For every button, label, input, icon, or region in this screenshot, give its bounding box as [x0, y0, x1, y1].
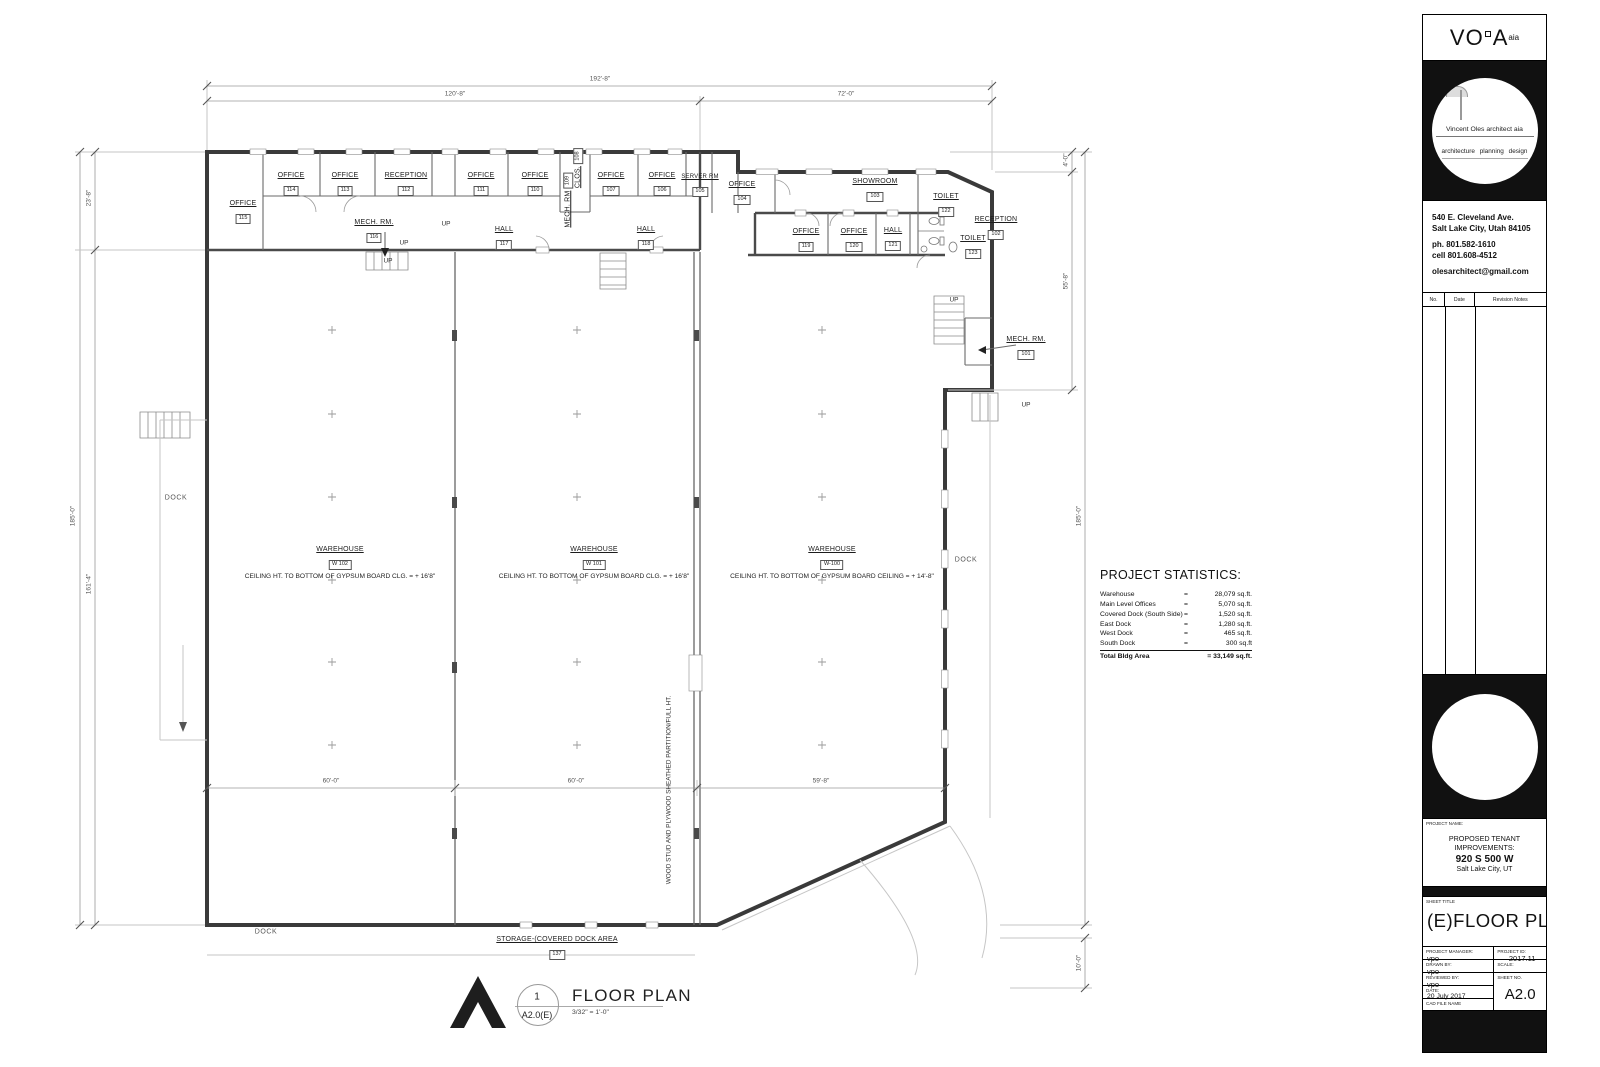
project-name-line2: 920 S 500 W — [1423, 854, 1546, 865]
project-name-line3: Salt Lake City, UT — [1423, 866, 1546, 873]
room-label-storage-137: STORAGE-(COVERED DOCK AREA 137 — [496, 936, 617, 960]
address-line-1: 540 E. Cleveland Ave. — [1432, 213, 1546, 224]
dock-label-west: DOCK — [165, 495, 188, 502]
firm-services: architecture planning design — [1432, 148, 1538, 155]
sheet-no-label: SHEET NO. — [1494, 973, 1546, 980]
title-block: VOAaia Vincent Oles architect aia archit… — [1422, 14, 1547, 1053]
room-label-office-104: OFFICE104 — [729, 181, 756, 205]
revision-table-header: No. Date Revision Notes — [1423, 293, 1546, 307]
room-label-office-115: OFFICE115 — [230, 200, 257, 224]
room-label-warehouse-w100: WAREHOUSE W-100 CEILING HT. TO BOTTOM OF… — [730, 546, 934, 580]
stamp-panel — [1423, 675, 1546, 819]
fields-left-column: PROJECT MANAGER:vpo DRAWN BY:vpo REVIEWE… — [1423, 947, 1494, 1010]
room-label-warehouse-w102: WAREHOUSE W 102 CEILING HT. TO BOTTOM OF… — [245, 546, 435, 580]
up-label: UP — [441, 221, 450, 228]
wall-openings — [250, 149, 948, 928]
drafting-lamp-sketch — [1460, 90, 1478, 120]
plan-sheet-ref: A2.0(E) — [522, 1010, 553, 1020]
title-block-footer — [1423, 1011, 1546, 1052]
firm-seal-disc: Vincent Oles architect aia architecture … — [1432, 78, 1538, 184]
logo-vo-text: VO — [1450, 25, 1484, 51]
fields-right-column: PROJECT ID:2017.11 SCALE: SHEET NO.A2.0 — [1494, 947, 1546, 1010]
plan-number: 1 — [534, 992, 540, 1003]
phone: ph. 801.582-1610 — [1432, 240, 1546, 251]
sheet-title-box: SHEET TITLE (E)FLOOR PLAN — [1423, 897, 1546, 947]
room-label-hall-117: HALL117 — [495, 226, 513, 250]
dim-bay-2: 60'-0" — [568, 778, 585, 785]
dim-left-lower: 161'-4" — [86, 574, 93, 594]
room-label-office-106: OFFICE106 — [649, 172, 676, 196]
stats-title: PROJECT STATISTICS: — [1100, 568, 1252, 582]
room-label-hall-118: HALL118 — [637, 226, 655, 250]
warehouse-partitions — [452, 252, 702, 925]
ceiling-note: CEILING HT. TO BOTTOM OF GYPSUM BOARD CL… — [245, 574, 435, 581]
divider — [1442, 158, 1528, 159]
firm-seal-panel: Vincent Oles architect aia architecture … — [1423, 61, 1546, 201]
plan-scale: 3/32" = 1'-0" — [572, 1009, 609, 1016]
divider — [1475, 307, 1476, 674]
address-line-2: Salt Lake City, Utah 84105 — [1432, 224, 1546, 235]
room-label-toilet-122: TOILET122 — [933, 193, 959, 217]
divider — [1445, 307, 1446, 674]
room-label-clos-108: CLOS.108 — [573, 148, 583, 188]
stats-row: South Dock=300 sq.ft — [1100, 639, 1252, 649]
dim-bay-1: 60'-0" — [323, 778, 340, 785]
room-label-office-114: OFFICE114 — [278, 172, 305, 196]
reviewed-by-label: REVIEWED BY: — [1423, 973, 1493, 980]
up-label: UP — [383, 258, 392, 265]
dock-label-east: DOCK — [955, 557, 978, 564]
stats-row: Covered Dock (South Side)=1,520 sq.ft. — [1100, 610, 1252, 620]
stats-row: Main Level Offices=5,070 sq.ft. — [1100, 600, 1252, 610]
dim-right-full: 185'-0" — [1076, 506, 1083, 526]
stamp-disc — [1432, 694, 1538, 800]
drawing-sheet: OFFICE115 OFFICE114 OFFICE113 RECEPTION1… — [0, 0, 1600, 1067]
plan-title: FLOOR PLAN — [572, 986, 692, 1006]
room-label-office-110: OFFICE110 — [522, 172, 549, 196]
project-name-label: PROJECT NAME: — [1423, 819, 1546, 826]
logo-a-text: A — [1493, 25, 1509, 51]
email: olesarchitect@gmail.com — [1432, 267, 1546, 278]
dim-right-top: 4'-0" — [1063, 153, 1070, 166]
stats-total-row: Total Bldg Area= 33,149 sq.ft. — [1100, 650, 1252, 662]
room-label-office-107: OFFICE107 — [598, 172, 625, 196]
room-label-office-113: OFFICE113 — [332, 172, 359, 196]
room-label-server-105: SERVER RM105 — [681, 174, 718, 197]
sheet-title-label: SHEET TITLE — [1423, 897, 1546, 904]
up-label: UP — [399, 240, 408, 247]
dim-top-left: 120'-8" — [445, 91, 465, 98]
project-statistics: PROJECT STATISTICS: Warehouse=28,079 sq.… — [1100, 568, 1252, 662]
room-name: OFFICE — [230, 200, 257, 207]
room-label-office-119: OFFICE119 — [793, 228, 820, 252]
stats-row: East Dock=1,280 sq.ft. — [1100, 620, 1252, 630]
divider-bar — [1423, 887, 1546, 897]
dim-top-overall: 192'-8" — [590, 76, 610, 83]
firm-logo: VOAaia — [1423, 15, 1546, 61]
cell: cell 801.608-4512 — [1432, 251, 1546, 262]
room-label-office-111: OFFICE111 — [468, 172, 495, 196]
stats-row: Warehouse=28,079 sq.ft. — [1100, 590, 1252, 600]
title-block-fields: PROJECT MANAGER:vpo DRAWN BY:vpo REVIEWE… — [1423, 947, 1546, 1011]
room-label-showroom-103: SHOWROOM103 — [852, 178, 897, 202]
room-label-hall-121: HALL121 — [884, 227, 902, 251]
stairs — [140, 232, 1016, 438]
revision-table-body — [1423, 307, 1546, 675]
walls-exterior — [207, 152, 992, 925]
firm-address: 540 E. Cleveland Ave. Salt Lake City, Ut… — [1423, 201, 1546, 293]
firm-tagline: Vincent Oles architect aia — [1432, 126, 1538, 133]
date-label: DATE: — [1423, 986, 1493, 993]
up-label: UP — [949, 297, 958, 304]
dim-top-right: 72'-0" — [838, 91, 855, 98]
dim-bay-3: 59'-8" — [813, 778, 830, 785]
dim-right-low: 10'-0" — [1076, 955, 1083, 972]
rev-col-date: Date — [1445, 293, 1475, 306]
project-name-line1: PROPOSED TENANT IMPROVEMENTS: — [1423, 834, 1546, 852]
dim-right-mid: 55'-8" — [1063, 273, 1070, 290]
dock-label-south: DOCK — [255, 929, 278, 936]
room-label-mech-101: MECH. RM.101 — [1006, 336, 1045, 360]
divider — [1436, 136, 1534, 137]
stats-row: West Dock=465 sq.ft. — [1100, 629, 1252, 639]
cad-file-label: CAD FILE NAME — [1423, 999, 1493, 1006]
north-arrow — [450, 976, 506, 1028]
drawn-by-label: DRAWN BY: — [1423, 960, 1493, 967]
room-label-toilet-123: TOILET123 — [960, 235, 986, 259]
ceiling-note: CEILING HT. TO BOTTOM OF GYPSUM BOARD CE… — [730, 574, 934, 581]
pm-label: PROJECT MANAGER: — [1423, 947, 1493, 954]
dimension-lines — [75, 80, 1092, 992]
up-label: UP — [1021, 402, 1030, 409]
dim-left-full: 185'-0" — [70, 506, 77, 526]
project-name-box: PROJECT NAME: PROPOSED TENANT IMPROVEMEN… — [1423, 819, 1546, 887]
sheet-title: (E)FLOOR PLAN — [1427, 910, 1546, 932]
logo-square-icon — [1485, 31, 1491, 37]
rev-col-no: No. — [1423, 293, 1445, 306]
room-label-mech-116: MECH. RM.116 — [354, 219, 393, 243]
room-label-reception-112: RECEPTION112 — [385, 172, 428, 196]
room-label-warehouse-w101: WAREHOUSE W 101 CEILING HT. TO BOTTOM OF… — [499, 546, 689, 580]
sheet-no-value: A2.0 — [1494, 986, 1546, 1003]
room-label-office-120: OFFICE120 — [841, 228, 868, 252]
ceiling-note: CEILING HT. TO BOTTOM OF GYPSUM BOARD CL… — [499, 574, 689, 581]
rev-col-notes: Revision Notes — [1475, 293, 1546, 306]
column-grid-marks — [328, 326, 826, 749]
dock-outlines — [160, 395, 990, 975]
logo-aia-text: aia — [1508, 33, 1519, 42]
room-label-mech-109: MECH. RM109 — [563, 172, 573, 227]
partition-note: WOOD STUD AND PLYWOOD SHEATHED PARTITION… — [666, 696, 673, 885]
toilet-fixtures — [918, 217, 957, 252]
project-id-label: PROJECT ID: — [1494, 947, 1546, 954]
dim-left-top: 23'-8" — [86, 190, 93, 207]
room-tag: 115 — [235, 214, 251, 224]
